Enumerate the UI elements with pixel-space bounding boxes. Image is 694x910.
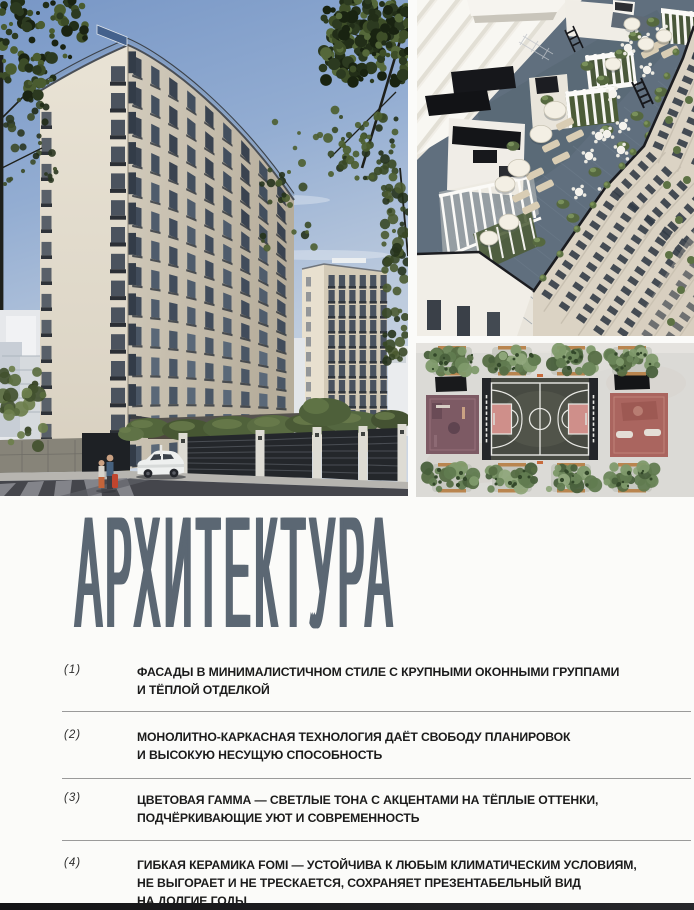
svg-text:АРХИТЕКТУРА: АРХИТЕКТУРА	[77, 500, 397, 640]
